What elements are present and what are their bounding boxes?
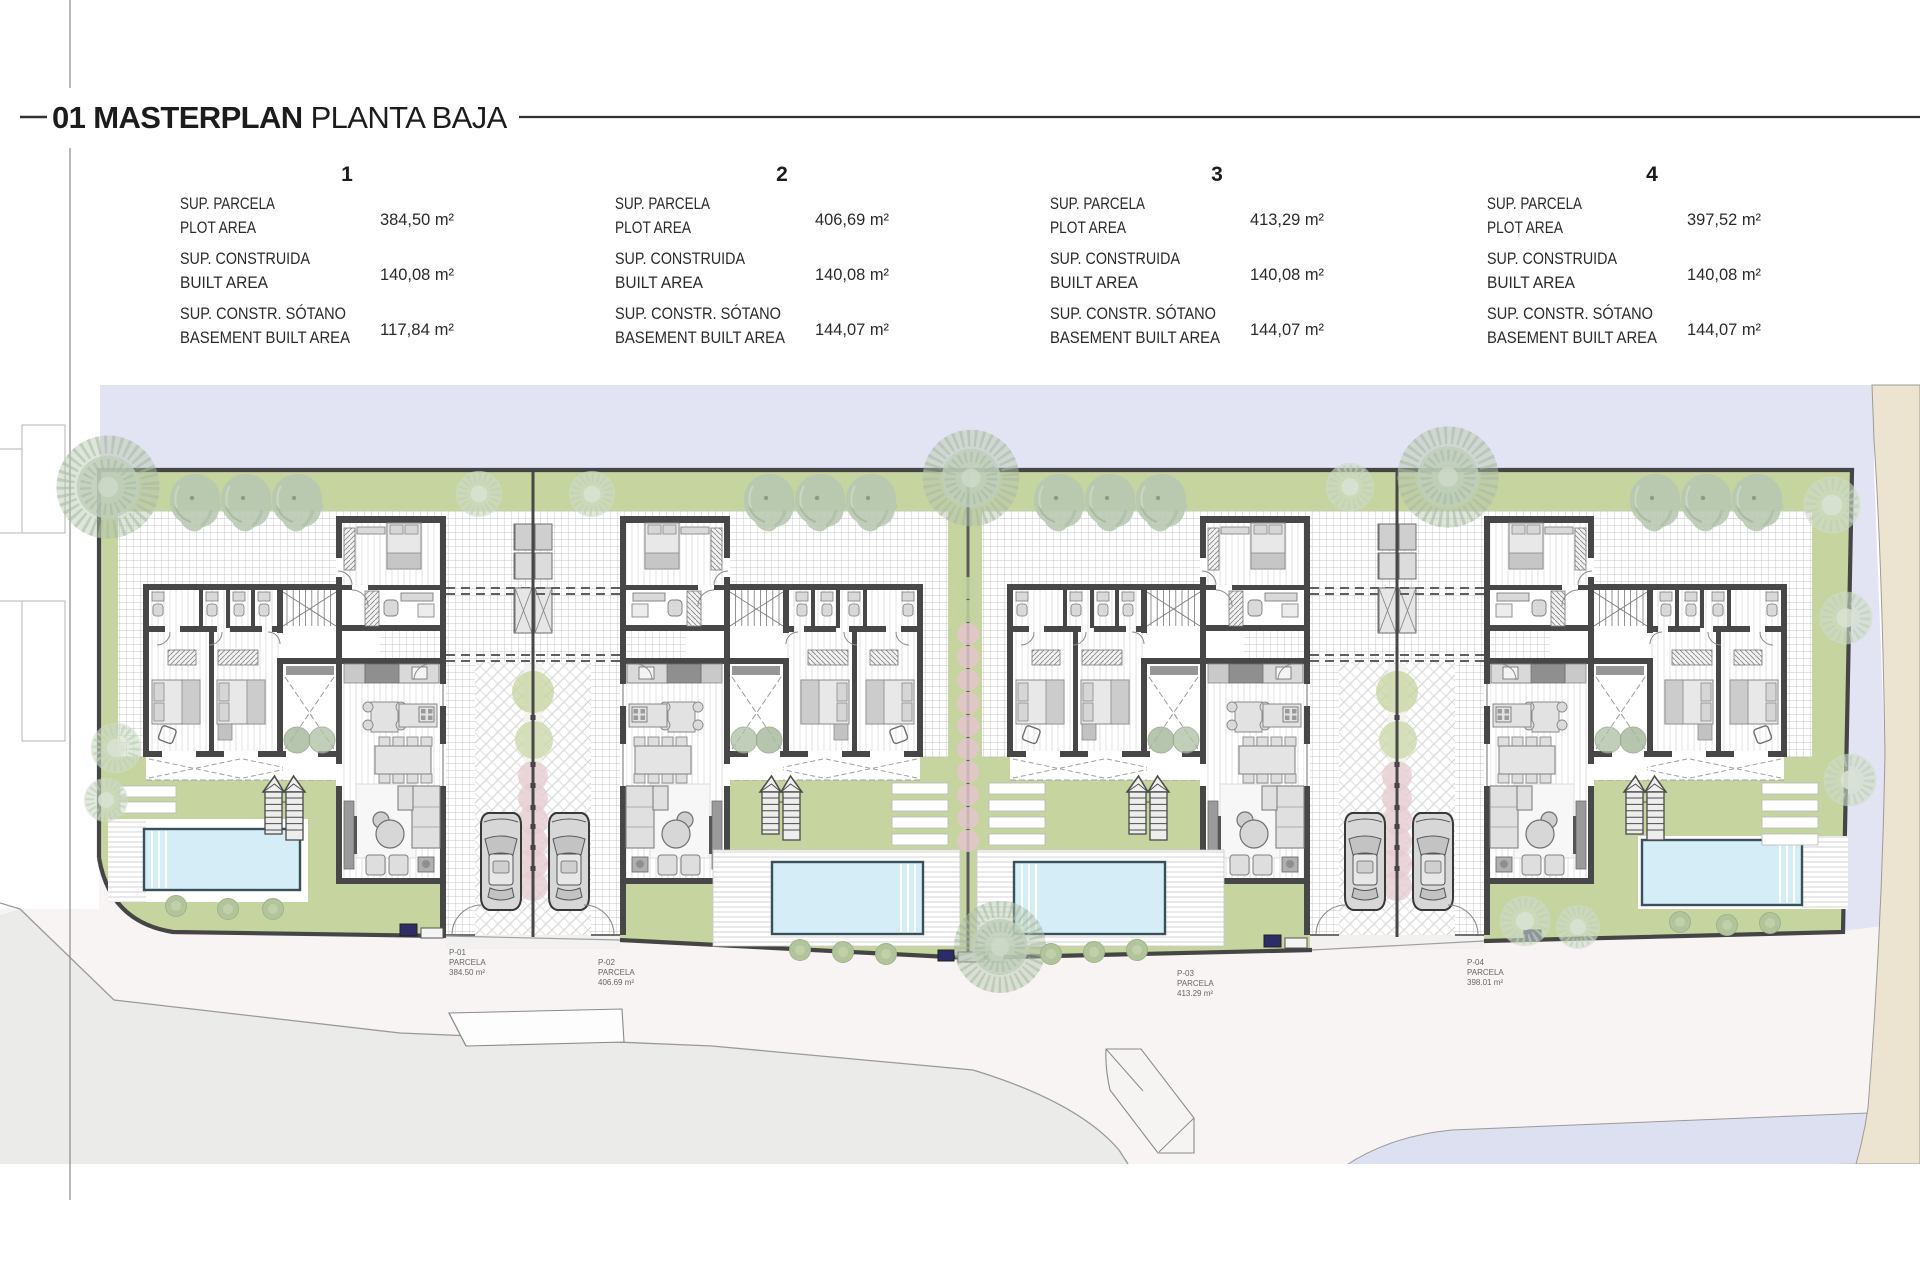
svg-text:SUP. PARCELA: SUP. PARCELA bbox=[615, 195, 710, 213]
svg-text:384.50 m²: 384.50 m² bbox=[449, 968, 485, 977]
svg-text:BASEMENT BUILT AREA: BASEMENT BUILT AREA bbox=[615, 329, 785, 347]
svg-text:SUP. CONSTR. SÓTANO: SUP. CONSTR. SÓTANO bbox=[1050, 304, 1216, 323]
svg-text:140,08 m²: 140,08 m² bbox=[380, 266, 454, 284]
svg-text:SUP. CONSTRUIDA: SUP. CONSTRUIDA bbox=[1050, 250, 1180, 268]
svg-text:406.69 m²: 406.69 m² bbox=[598, 978, 634, 987]
svg-text:SUP. CONSTRUIDA: SUP. CONSTRUIDA bbox=[180, 250, 310, 268]
svg-text:BASEMENT BUILT AREA: BASEMENT BUILT AREA bbox=[1050, 329, 1220, 347]
svg-text:384,50 m²: 384,50 m² bbox=[380, 211, 454, 229]
svg-text:SUP. PARCELA: SUP. PARCELA bbox=[1050, 195, 1145, 213]
svg-text:SUP. CONSTR. SÓTANO: SUP. CONSTR. SÓTANO bbox=[180, 304, 346, 323]
svg-text:SUP. PARCELA: SUP. PARCELA bbox=[180, 195, 275, 213]
svg-text:144,07 m²: 144,07 m² bbox=[815, 321, 889, 339]
svg-text:P-03: P-03 bbox=[1177, 969, 1194, 978]
svg-text:BASEMENT BUILT AREA: BASEMENT BUILT AREA bbox=[180, 329, 350, 347]
svg-text:2: 2 bbox=[776, 163, 788, 186]
svg-text:PARCELA: PARCELA bbox=[1467, 968, 1504, 977]
svg-text:BUILT AREA: BUILT AREA bbox=[615, 274, 703, 292]
svg-text:4: 4 bbox=[1646, 163, 1658, 186]
svg-text:406,69 m²: 406,69 m² bbox=[815, 211, 889, 229]
svg-text:P-01: P-01 bbox=[449, 948, 466, 957]
svg-text:P-02: P-02 bbox=[598, 958, 615, 967]
svg-text:3: 3 bbox=[1211, 163, 1223, 186]
svg-text:413.29 m²: 413.29 m² bbox=[1177, 989, 1213, 998]
svg-text:SUP. CONSTRUIDA: SUP. CONSTRUIDA bbox=[615, 250, 745, 268]
svg-text:398.01 m²: 398.01 m² bbox=[1467, 978, 1503, 987]
svg-text:144,07 m²: 144,07 m² bbox=[1250, 321, 1324, 339]
svg-text:413,29 m²: 413,29 m² bbox=[1250, 211, 1324, 229]
svg-text:117,84 m²: 117,84 m² bbox=[380, 321, 454, 339]
svg-text:PLOT AREA: PLOT AREA bbox=[1487, 219, 1563, 237]
svg-text:PLOT AREA: PLOT AREA bbox=[1050, 219, 1126, 237]
svg-text:PARCELA: PARCELA bbox=[1177, 979, 1214, 988]
svg-text:SUP. PARCELA: SUP. PARCELA bbox=[1487, 195, 1582, 213]
svg-text:P-04: P-04 bbox=[1467, 958, 1484, 967]
svg-text:140,08 m²: 140,08 m² bbox=[1687, 266, 1761, 284]
svg-text:SUP. CONSTRUIDA: SUP. CONSTRUIDA bbox=[1487, 250, 1617, 268]
svg-text:PLOT AREA: PLOT AREA bbox=[615, 219, 691, 237]
svg-text:PARCELA: PARCELA bbox=[598, 968, 635, 977]
svg-text:397,52 m²: 397,52 m² bbox=[1687, 211, 1761, 229]
svg-text:SUP. CONSTR. SÓTANO: SUP. CONSTR. SÓTANO bbox=[1487, 304, 1653, 323]
svg-text:BUILT AREA: BUILT AREA bbox=[180, 274, 268, 292]
svg-text:144,07 m²: 144,07 m² bbox=[1687, 321, 1761, 339]
svg-text:PLOT AREA: PLOT AREA bbox=[180, 219, 256, 237]
svg-text:PARCELA: PARCELA bbox=[449, 958, 486, 967]
svg-text:BUILT AREA: BUILT AREA bbox=[1487, 274, 1575, 292]
svg-text:1: 1 bbox=[341, 163, 353, 186]
svg-text:140,08 m²: 140,08 m² bbox=[815, 266, 889, 284]
svg-text:SUP. CONSTR. SÓTANO: SUP. CONSTR. SÓTANO bbox=[615, 304, 781, 323]
svg-text:BASEMENT BUILT AREA: BASEMENT BUILT AREA bbox=[1487, 329, 1657, 347]
svg-text:BUILT AREA: BUILT AREA bbox=[1050, 274, 1138, 292]
svg-text:140,08 m²: 140,08 m² bbox=[1250, 266, 1324, 284]
svg-text:01 MASTERPLAN PLANTA BAJA: 01 MASTERPLAN PLANTA BAJA bbox=[52, 100, 508, 135]
